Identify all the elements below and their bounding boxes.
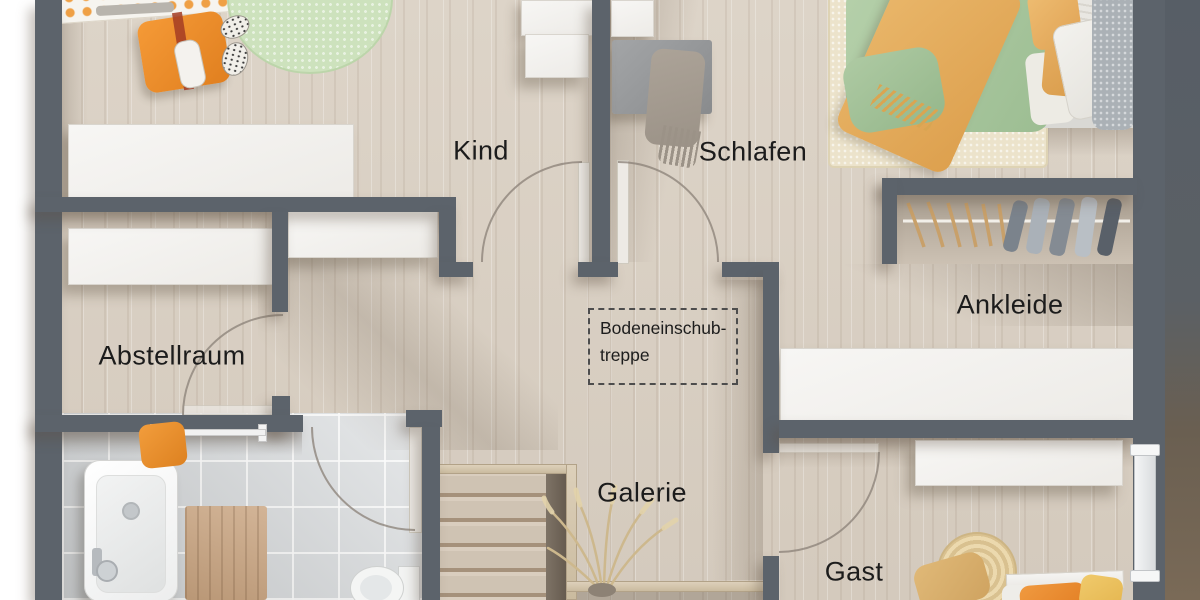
- door-leaf-kind: [578, 162, 590, 264]
- wall-kind-south: [35, 197, 456, 212]
- attic-hatch-label-line2: treppe: [600, 345, 650, 365]
- toilet-bowl: [360, 575, 392, 600]
- stairwell-void: [546, 472, 566, 600]
- orange-towel: [138, 421, 188, 470]
- wall-galerie-gast-upper: [763, 270, 779, 453]
- plan-outside-edge: [1165, 0, 1200, 600]
- door-leaf-schlafen: [617, 160, 629, 264]
- wardrobe-niche: [897, 195, 1133, 264]
- stairs: [440, 472, 546, 600]
- kind-wardrobe: [68, 124, 354, 198]
- bench-blanket-fringe: [657, 125, 701, 169]
- wardrobe-frame-top: [882, 178, 1137, 195]
- room-label-abstellraum: Abstellraum: [99, 341, 246, 372]
- railing-bottom: [566, 581, 764, 592]
- wall-kind-door-foot: [439, 262, 473, 277]
- floor-plan: Kind Schlafen Ankleide Abstellraum Galer…: [0, 0, 1200, 600]
- shower-head-icon: [96, 560, 118, 582]
- room-label-kind: Kind: [453, 136, 509, 167]
- railing-side: [566, 464, 577, 600]
- wall-left-outer: [35, 0, 62, 600]
- room-label-schlafen: Schlafen: [699, 137, 807, 168]
- door-leaf-abstellraum: [183, 405, 283, 415]
- wall-bath-door-stub: [406, 410, 442, 427]
- wooden-bath-mat: [185, 506, 267, 600]
- attic-hatch-label-line1: Bodeneinschub-: [600, 318, 726, 338]
- hallway-sideboard: [288, 210, 438, 258]
- wall-ankleide-gast: [779, 420, 1135, 438]
- headboard: [1092, 0, 1135, 130]
- room-label-galerie: Galerie: [597, 478, 687, 509]
- kind-cabinet-lower: [525, 34, 589, 78]
- wall-kind-door-jamb: [439, 210, 456, 265]
- radiator: [1134, 446, 1156, 582]
- wall-kind-schlafen: [592, 0, 610, 266]
- bathtub-drain-icon: [122, 502, 140, 520]
- kind-cabinet-upper: [521, 0, 593, 36]
- wall-bath-east: [422, 427, 440, 600]
- gast-shelf: [915, 440, 1123, 486]
- abstellraum-shelf: [68, 228, 276, 285]
- door-leaf-gast: [779, 443, 879, 453]
- wall-center-stub: [578, 262, 618, 277]
- ankleide-sideboard: [780, 348, 1134, 422]
- railing-top: [438, 464, 577, 474]
- room-label-ankleide: Ankleide: [957, 290, 1064, 321]
- schlafen-cabinet: [611, 0, 654, 37]
- radiator-cap-bottom: [1130, 570, 1160, 582]
- wall-galerie-gast-lower: [763, 556, 779, 600]
- attic-hatch-box: Bodeneinschub- treppe: [588, 308, 738, 385]
- radiator-cap-top: [1130, 444, 1160, 456]
- door-leaf-bath: [409, 427, 422, 533]
- wall-abstellraum-east: [272, 212, 288, 312]
- room-label-gast: Gast: [825, 557, 884, 588]
- wardrobe-frame-left: [882, 178, 897, 264]
